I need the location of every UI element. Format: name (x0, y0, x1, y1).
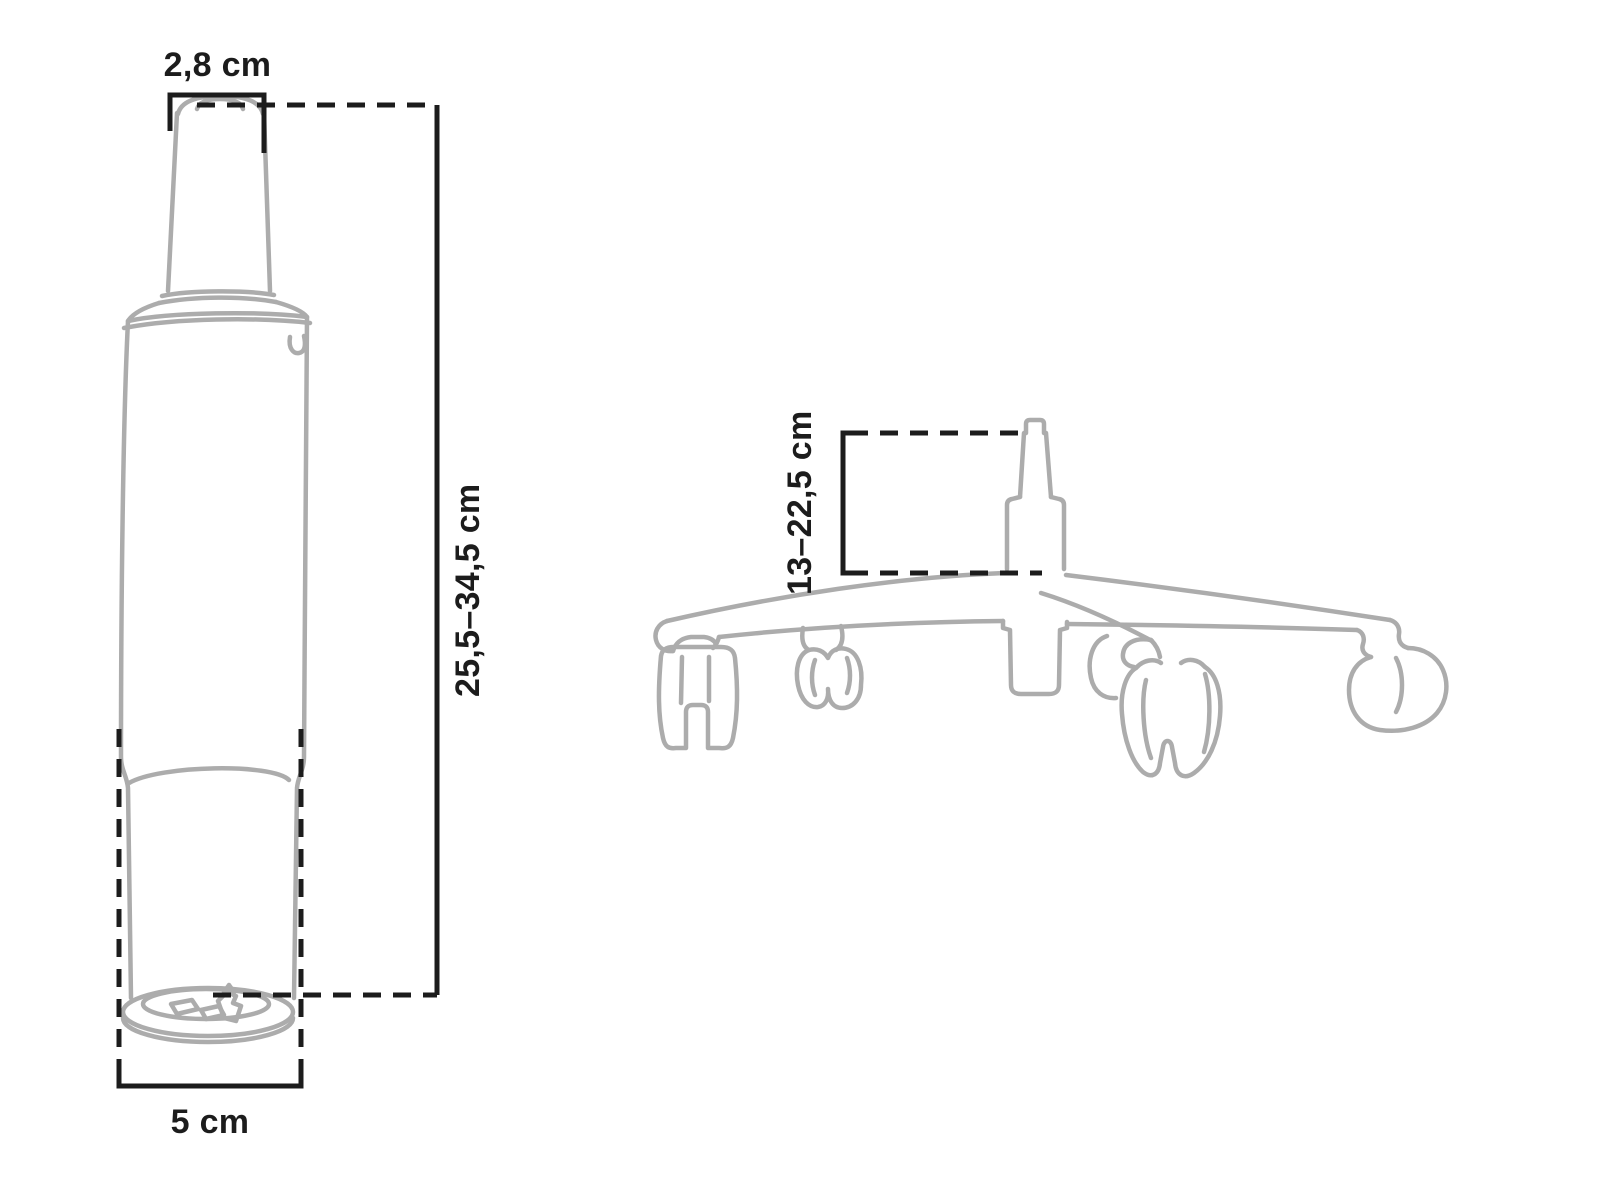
base-far-edge-left (667, 573, 1005, 621)
dimension-label-top-width: 2,8 cm (140, 47, 295, 84)
dimension-label-stem-height-range: 13–22,5 cm (782, 408, 826, 598)
stem-height-bracket (843, 433, 863, 573)
chair-base-drawing (655, 420, 1446, 776)
technical-diagram-svg (0, 0, 1600, 1201)
dimension-label-bottom-width: 5 cm (135, 1104, 285, 1141)
dimension-label-height-range: 25,5–34,5 cm (450, 440, 494, 740)
base-inner-edge (1041, 593, 1152, 641)
bottom-width-bracket (119, 1062, 301, 1086)
gas-lift-drawing (121, 96, 310, 1042)
diagram-canvas: 2,8 cm 25,5–34,5 cm 5 cm 13–22,5 cm (0, 0, 1600, 1201)
base-dimension-lines (843, 433, 1042, 573)
base-far-edge-right (1066, 575, 1390, 620)
gas-lift-dimension-lines (119, 95, 437, 1086)
base-hub (1003, 621, 1067, 694)
base-piston-cap (1026, 420, 1044, 433)
base-near-edge-right (1067, 624, 1357, 630)
caster-1-wheel (659, 647, 737, 748)
clip-hole-detail (290, 336, 305, 353)
base-near-edge-left (719, 621, 1003, 637)
